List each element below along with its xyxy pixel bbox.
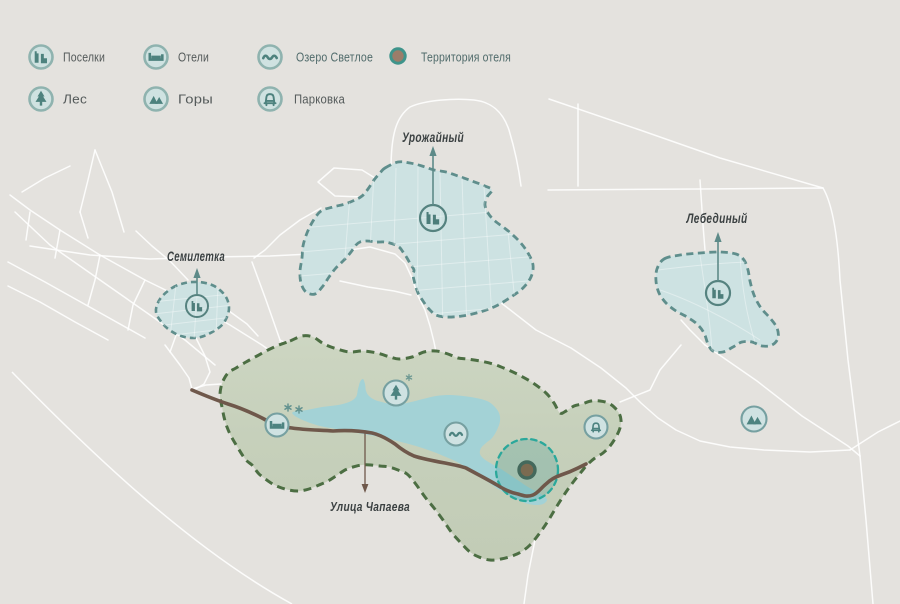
- svg-text:Семилетка: Семилетка: [167, 249, 225, 264]
- svg-text:Лес: Лес: [63, 92, 87, 107]
- svg-text:Лебединый: Лебединый: [686, 211, 748, 226]
- svg-text:Горы: Горы: [178, 92, 213, 107]
- svg-text:Урожайный: Урожайный: [402, 130, 464, 145]
- svg-text:Озеро Светлое: Озеро Светлое: [296, 50, 373, 65]
- svg-text:Территория отеля: Территория отеля: [421, 50, 511, 65]
- svg-text:Поселки: Поселки: [63, 50, 105, 65]
- svg-text:Улица Чапаева: Улица Чапаева: [330, 499, 410, 514]
- svg-text:Парковка: Парковка: [294, 92, 345, 107]
- svg-text:Отели: Отели: [178, 50, 209, 65]
